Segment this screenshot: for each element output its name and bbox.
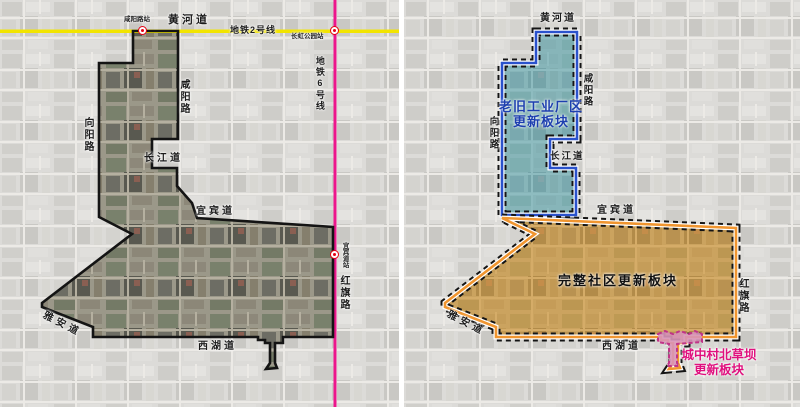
road-label-xianyang-lu: 咸阳路 <box>178 79 189 115</box>
metro-line2-yellow-line <box>0 30 399 34</box>
zone-label-village-line1: 城中村北草坝 <box>672 348 766 363</box>
metro-station-icon <box>330 250 339 259</box>
station-label-xianyanglu: 咸阳路站 <box>124 16 150 23</box>
station-label-changhonggongyuan: 长虹公园站 <box>291 33 324 40</box>
zone-label-community: 完整社区更新板块 <box>558 270 678 289</box>
road-label-yibin-dao: 宜宾道 <box>597 205 636 216</box>
metro-line6-label: 地铁6号线 <box>314 56 324 112</box>
metro-line2-label: 地铁2号线 <box>230 26 276 36</box>
road-label-xihu-dao: 西湖道 <box>602 341 641 352</box>
road-label-hongqi-lu: 红旗路 <box>737 278 748 314</box>
road-label-hongqi-lu: 红旗路 <box>338 275 349 311</box>
road-label-changjiang-dao: 长江道 <box>144 153 183 164</box>
zone-label-village: 城中村北草坝 更新板块 <box>672 348 766 377</box>
metro-station-icon <box>330 26 339 35</box>
zone-label-industrial-line2: 更新板块 <box>494 114 588 129</box>
zone-label-industrial-line1: 老旧工业厂区 <box>494 99 588 114</box>
left-map-panel[interactable]: 黄河道 地铁2号线 咸阳路站 长虹公园站 地铁6号线 宜宾道站 咸阳路 向阳路 … <box>0 0 399 407</box>
right-map-panel[interactable]: 黄河道 咸阳路 向阳路 长江道 宜宾道 雅安道 西湖道 红旗路 老旧工业厂区 更… <box>404 0 800 407</box>
metro-line6-magenta-line <box>334 0 337 407</box>
road-label-xihu-dao: 西湖道 <box>198 341 237 352</box>
road-label-huanghe-dao: 黄河道 <box>168 14 210 26</box>
metro-station-icon <box>138 26 147 35</box>
zone-label-industrial: 老旧工业厂区 更新板块 <box>494 99 588 129</box>
road-label-yibin-dao: 宜宾道 <box>196 206 235 217</box>
zone-label-village-line2: 更新板块 <box>672 363 766 378</box>
road-label-changjiang-dao: 长江道 <box>550 152 585 162</box>
road-label-huanghe-dao: 黄河道 <box>540 13 576 24</box>
station-label-yibindao: 宜宾道站 <box>341 242 348 268</box>
road-label-xiangyang-lu: 向阳路 <box>82 117 93 153</box>
